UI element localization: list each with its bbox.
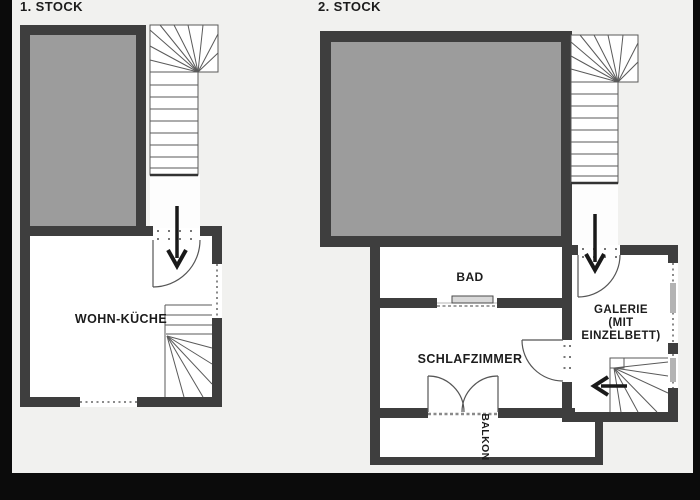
floor1-window-right <box>212 264 222 318</box>
floor-2-plan <box>326 35 679 465</box>
floor2-staircase <box>571 35 638 183</box>
floor2-void-room <box>326 37 567 242</box>
floor1-interior-stairs <box>165 305 212 397</box>
room-label-balkon: BALKON <box>479 413 491 460</box>
room-label-schlafzimmer: SCHLAFZIMMER <box>418 352 523 366</box>
floor-1-plan <box>20 25 222 407</box>
floor2-gallery-windows <box>668 263 678 388</box>
floor1-staircase <box>150 25 218 175</box>
floorplan-screenshot: 1. STOCK 2. STOCK WOHN-KÜCHE BAD SCHLAFZ… <box>0 0 700 500</box>
galerie-label-line3: EINZELBETT) <box>581 330 660 343</box>
room-label-bad: BAD <box>456 270 483 284</box>
galerie-label-line1: GALERIE <box>581 304 660 317</box>
room-label-galerie: GALERIE (MIT EINZELBETT) <box>581 304 660 343</box>
room-label-wohn-kueche: WOHN-KÜCHE <box>75 312 167 326</box>
floor1-title: 1. STOCK <box>20 0 83 14</box>
floor2-title: 2. STOCK <box>318 0 381 14</box>
floor1-void-room <box>25 30 141 231</box>
floor1-window-bottom <box>80 397 137 407</box>
galerie-label-line2: (MIT <box>581 317 660 330</box>
floorplan-drawing <box>0 0 700 500</box>
